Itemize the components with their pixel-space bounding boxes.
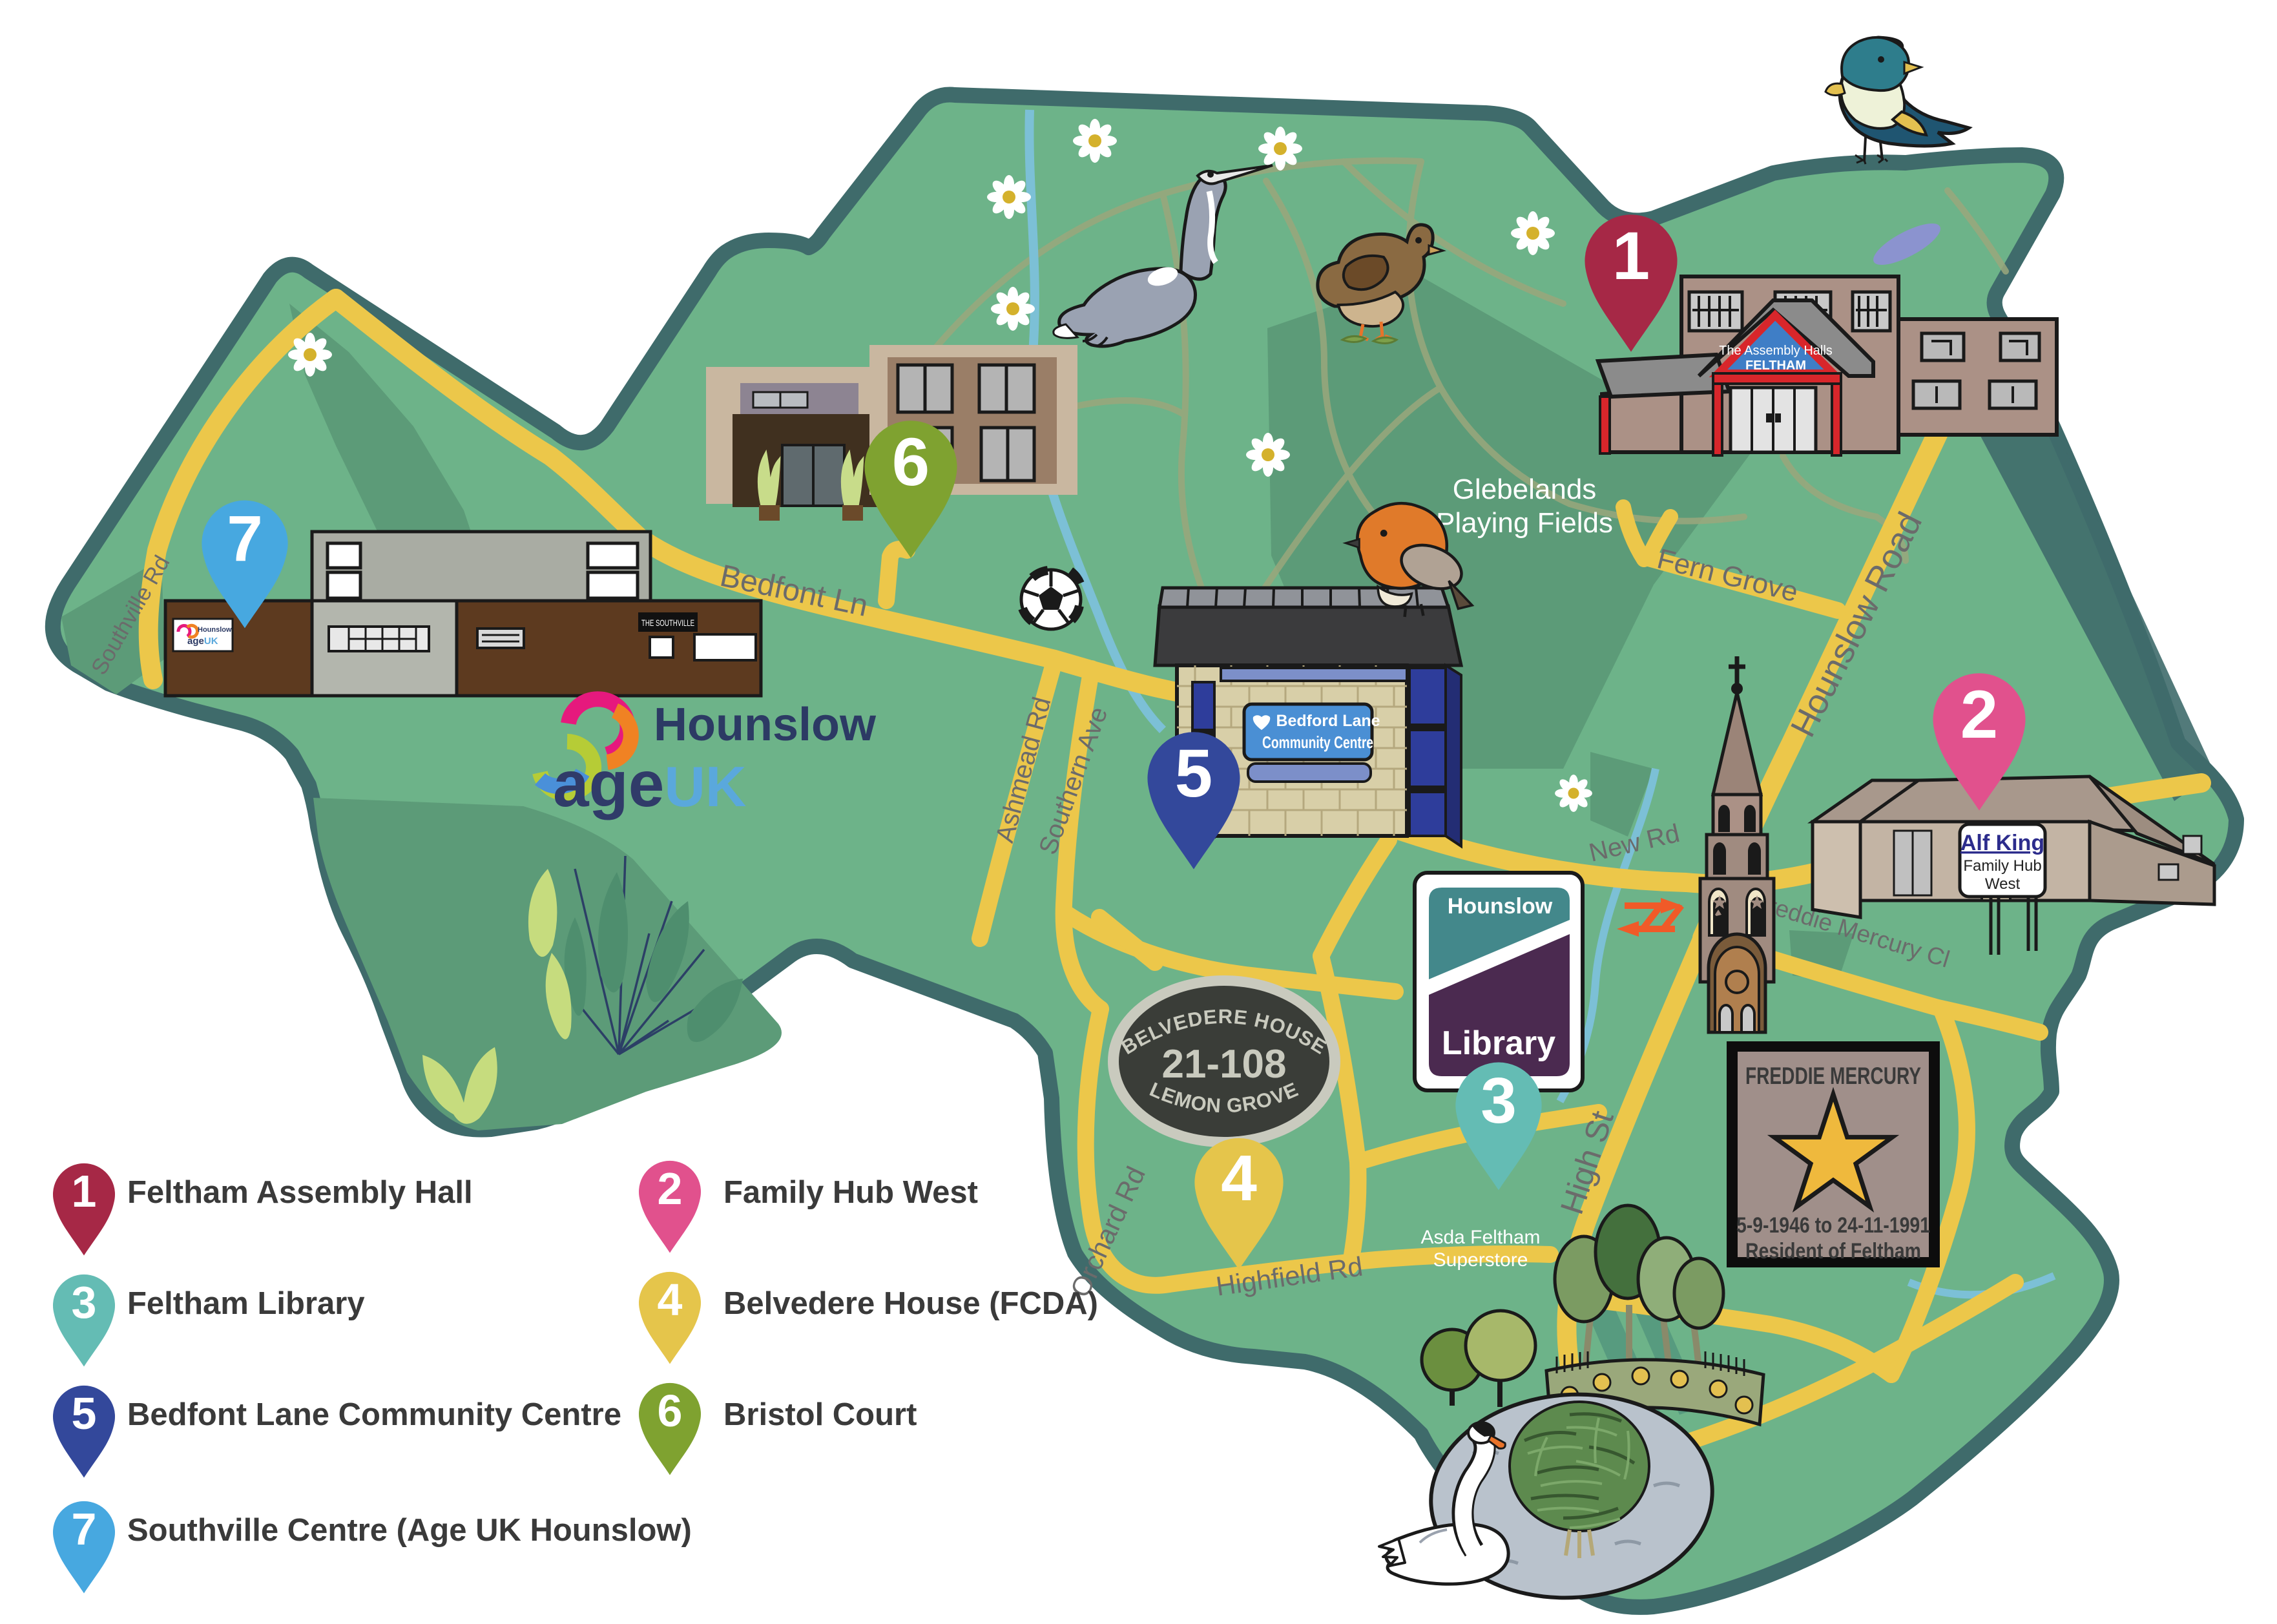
svg-text:West: West [1985, 875, 2021, 893]
svg-text:Belvedere House (FCDA): Belvedere House (FCDA) [723, 1286, 1098, 1321]
svg-text:7: 7 [72, 1504, 97, 1554]
svg-text:Feltham Assembly Hall: Feltham Assembly Hall [127, 1175, 473, 1210]
svg-text:Family Hub West: Family Hub West [723, 1175, 978, 1210]
svg-text:2: 2 [1960, 677, 1998, 753]
svg-text:FREDDIE MERCURY: FREDDIE MERCURY [1745, 1063, 1921, 1089]
svg-text:7: 7 [227, 503, 263, 575]
svg-text:Southville Centre (Age UK Houn: Southville Centre (Age UK Hounslow) [127, 1513, 692, 1548]
svg-text:Bedfont Lane Community Centre: Bedfont Lane Community Centre [127, 1397, 621, 1432]
svg-text:Playing Fields: Playing Fields [1436, 507, 1613, 539]
svg-text:Glebelands: Glebelands [1453, 474, 1597, 505]
svg-text:Superstore: Superstore [1433, 1249, 1528, 1271]
svg-text:6: 6 [892, 424, 930, 500]
svg-text:Family Hub: Family Hub [1963, 857, 2041, 875]
svg-text:ageUK: ageUK [187, 636, 218, 647]
svg-text:Library: Library [1442, 1025, 1555, 1062]
svg-text:Bedford Lane: Bedford Lane [1276, 712, 1380, 730]
svg-text:3: 3 [1481, 1065, 1517, 1137]
svg-text:Hounslow: Hounslow [1448, 894, 1553, 919]
svg-text:FELTHAM: FELTHAM [1745, 359, 1806, 373]
svg-text:Alf King: Alf King [1960, 831, 2044, 855]
svg-text:21-108: 21-108 [1161, 1042, 1286, 1087]
svg-text:1: 1 [72, 1166, 97, 1216]
svg-text:ageUK: ageUK [553, 748, 746, 820]
svg-text:5: 5 [72, 1388, 97, 1439]
svg-text:Bristol Court: Bristol Court [723, 1397, 917, 1432]
svg-text:4: 4 [658, 1275, 683, 1325]
svg-text:Resident of Feltham: Resident of Feltham [1745, 1239, 1921, 1264]
svg-text:Asda Feltham: Asda Feltham [1420, 1227, 1540, 1248]
svg-text:Community Centre: Community Centre [1262, 733, 1373, 752]
svg-text:Feltham Library: Feltham Library [127, 1286, 365, 1321]
svg-text:4: 4 [1221, 1142, 1257, 1214]
svg-text:5: 5 [1175, 736, 1212, 811]
svg-text:5-9-1946 to 24-11-1991: 5-9-1946 to 24-11-1991 [1736, 1213, 1930, 1238]
svg-text:6: 6 [658, 1386, 683, 1436]
svg-text:1: 1 [1612, 218, 1650, 294]
svg-text:The Assembly Halls: The Assembly Halls [1719, 344, 1833, 358]
svg-text:3: 3 [72, 1277, 97, 1327]
svg-text:Hounslow: Hounslow [198, 626, 232, 634]
svg-text:Hounslow: Hounslow [654, 699, 877, 751]
svg-text:THE SOUTHVILLE: THE SOUTHVILLE [641, 618, 694, 628]
svg-text:2: 2 [658, 1163, 683, 1214]
